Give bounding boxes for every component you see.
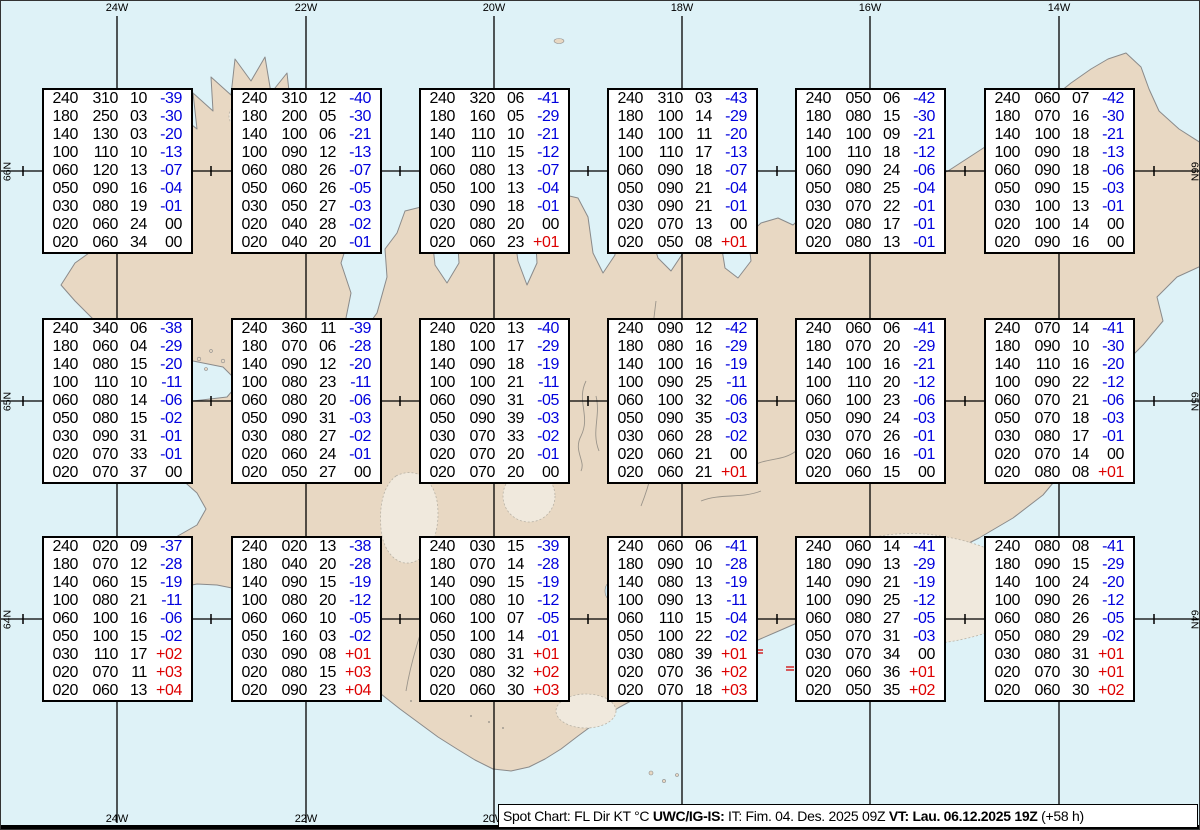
kt-value: 21 (1072, 392, 1089, 410)
spot-row: 10009018-13 (989, 144, 1129, 162)
temp-value: -01 (160, 198, 182, 216)
temp-value: -05 (913, 610, 935, 628)
dir-value: 060 (93, 574, 119, 592)
fl-value: 020 (618, 446, 644, 464)
kt-value: 22 (695, 628, 712, 646)
spot-row: 03008027-02 (236, 428, 376, 446)
fl-value: 180 (618, 108, 644, 126)
dir-value: 070 (658, 216, 684, 234)
dir-value: 020 (93, 538, 119, 556)
spot-row: 06009018-06 (989, 162, 1129, 180)
kt-value: 21 (883, 574, 900, 592)
spot-data-box-r1c5: 24007014-4118009010-3014011016-201000902… (984, 318, 1135, 484)
spot-data-box-r2c2: 24003015-3918007014-2814009015-191000801… (419, 536, 570, 702)
kt-value: 05 (507, 108, 524, 126)
kt-value: 14 (1072, 320, 1089, 338)
dir-value: 060 (470, 682, 496, 700)
spot-row: 10011010-13 (47, 144, 187, 162)
dir-value: 080 (470, 216, 496, 234)
kt-value: 32 (507, 664, 524, 682)
fl-value: 240 (995, 90, 1021, 108)
dir-value: 250 (93, 108, 119, 126)
dir-value: 060 (282, 180, 308, 198)
kt-value: 15 (883, 464, 900, 482)
dir-value: 020 (282, 538, 308, 556)
dir-value: 100 (658, 108, 684, 126)
temp-value: -21 (913, 126, 935, 144)
fl-value: 020 (618, 664, 644, 682)
dir-value: 090 (846, 574, 872, 592)
temp-value: -11 (161, 592, 182, 610)
dir-value: 090 (658, 198, 684, 216)
dir-value: 310 (658, 90, 684, 108)
kt-value: 21 (695, 446, 712, 464)
kt-value: 08 (319, 646, 336, 664)
temp-value: -01 (537, 628, 559, 646)
temp-value: -06 (349, 392, 371, 410)
fl-value: 180 (995, 338, 1021, 356)
dir-value: 100 (1035, 198, 1061, 216)
temp-value: -30 (160, 108, 182, 126)
dir-value: 080 (93, 392, 119, 410)
kt-value: 13 (319, 538, 336, 556)
dir-value: 060 (846, 320, 872, 338)
spot-chart-stage: 24031010-3918025003-3014013003-201001101… (0, 0, 1200, 830)
kt-value: 20 (507, 464, 524, 482)
fl-value: 060 (806, 392, 832, 410)
fl-value: 060 (430, 162, 456, 180)
fl-value: 100 (242, 592, 268, 610)
dir-value: 090 (658, 162, 684, 180)
kt-value: 15 (130, 574, 147, 592)
dir-value: 060 (93, 682, 119, 700)
kt-value: 23 (319, 374, 336, 392)
spot-row: 10011015-12 (424, 144, 564, 162)
temp-value: -02 (349, 628, 371, 646)
temp-value: +01 (533, 646, 559, 664)
spot-row: 18006004-29 (47, 338, 187, 356)
spot-row: 06010016-06 (47, 610, 187, 628)
spot-row: 02008017-01 (800, 216, 940, 234)
kt-value: 17 (507, 338, 524, 356)
temp-value: 00 (1107, 234, 1124, 252)
spot-row: 02006030+02 (989, 682, 1129, 700)
fl-value: 140 (618, 126, 644, 144)
spot-row: 24005006-42 (800, 90, 940, 108)
spot-row: 24006006-41 (800, 320, 940, 338)
dir-value: 100 (1035, 574, 1061, 592)
fl-value: 050 (995, 180, 1021, 198)
temp-value: 00 (354, 464, 371, 482)
fl-value: 030 (53, 198, 79, 216)
kt-value: 18 (1072, 144, 1089, 162)
spot-data-box-r0c3: 24031003-4318010014-2914010011-201001101… (607, 88, 758, 254)
dir-value: 080 (470, 162, 496, 180)
spot-row: 0200701400 (989, 446, 1129, 464)
spot-row: 0200702000 (424, 464, 564, 482)
fl-value: 030 (242, 646, 268, 664)
fl-value: 100 (806, 592, 832, 610)
temp-value: -30 (913, 108, 935, 126)
fl-value: 100 (430, 374, 456, 392)
spot-row: 02008008+01 (989, 464, 1129, 482)
temp-value: -04 (160, 180, 182, 198)
fl-value: 100 (430, 592, 456, 610)
spot-row: 24006014-41 (800, 538, 940, 556)
spot-row: 10009025-11 (612, 374, 752, 392)
kt-value: 10 (130, 374, 147, 392)
kt-value: 24 (1072, 574, 1089, 592)
dir-value: 110 (471, 126, 495, 144)
fl-value: 140 (242, 126, 268, 144)
dir-value: 100 (1035, 126, 1061, 144)
fl-value: 060 (242, 392, 268, 410)
kt-value: 17 (1072, 428, 1089, 446)
temp-value: -12 (1102, 592, 1124, 610)
spot-row: 0200602100 (612, 446, 752, 464)
dir-value: 090 (658, 320, 684, 338)
dir-value: 100 (658, 126, 684, 144)
temp-value: -42 (725, 320, 747, 338)
dir-value: 080 (1035, 628, 1061, 646)
kt-value: 18 (1072, 126, 1089, 144)
dir-value: 080 (282, 592, 308, 610)
kt-value: 13 (695, 216, 712, 234)
kt-value: 14 (883, 538, 900, 556)
dir-value: 090 (846, 410, 872, 428)
legend-columns-text: Spot Chart: FL Dir KT °C (503, 808, 653, 824)
dir-value: 060 (658, 538, 684, 556)
fl-value: 030 (430, 646, 456, 664)
spot-row: 03010013-01 (989, 198, 1129, 216)
fl-value: 050 (618, 628, 644, 646)
spot-row: 14010009-21 (800, 126, 940, 144)
spot-row: 0200603400 (47, 234, 187, 252)
fl-value: 050 (995, 628, 1021, 646)
temp-value: 00 (542, 216, 559, 234)
dir-value: 100 (93, 628, 119, 646)
dir-value: 070 (470, 464, 496, 482)
temp-value: 00 (165, 216, 182, 234)
temp-value: -28 (349, 556, 371, 574)
kt-value: 21 (130, 592, 147, 610)
fl-value: 180 (995, 556, 1021, 574)
temp-value: -01 (913, 216, 935, 234)
temp-value: -01 (725, 198, 747, 216)
temp-value: -03 (349, 198, 371, 216)
temp-value: -02 (349, 428, 371, 446)
temp-value: -11 (726, 592, 747, 610)
dir-value: 080 (658, 574, 684, 592)
kt-value: 12 (695, 320, 712, 338)
spot-row: 18025003-30 (47, 108, 187, 126)
kt-value: 10 (507, 592, 524, 610)
fl-value: 020 (53, 446, 79, 464)
spot-row: 03006028-02 (612, 428, 752, 446)
spot-row: 0300703400 (800, 646, 940, 664)
dir-value: 060 (846, 464, 872, 482)
temp-value: -28 (537, 556, 559, 574)
kt-value: 27 (319, 198, 336, 216)
fl-value: 050 (618, 410, 644, 428)
dir-value: 080 (1035, 610, 1061, 628)
spot-row: 10011018-12 (800, 144, 940, 162)
fl-value: 060 (53, 162, 79, 180)
fl-value: 050 (806, 180, 832, 198)
kt-value: 23 (883, 392, 900, 410)
temp-value: +01 (721, 234, 747, 252)
temp-value: -21 (1102, 126, 1124, 144)
temp-value: 00 (918, 646, 935, 664)
dir-value: 160 (470, 108, 496, 126)
temp-value: +03 (533, 682, 559, 700)
spot-row: 24002013-38 (236, 538, 376, 556)
temp-value: -01 (913, 234, 935, 252)
spot-row: 02007033-01 (47, 446, 187, 464)
spot-row: 10011010-11 (47, 374, 187, 392)
spot-row: 03007022-01 (800, 198, 940, 216)
temp-value: -01 (537, 198, 559, 216)
dir-value: 090 (846, 556, 872, 574)
kt-value: 18 (695, 682, 712, 700)
fl-value: 020 (430, 682, 456, 700)
temp-value: -01 (537, 446, 559, 464)
dir-value: 110 (1036, 356, 1060, 374)
spot-row: 06008026-05 (989, 610, 1129, 628)
fl-value: 050 (242, 180, 268, 198)
dir-value: 100 (1035, 216, 1061, 234)
temp-value: -13 (1102, 144, 1124, 162)
kt-value: 15 (1072, 180, 1089, 198)
dir-value: 080 (846, 234, 872, 252)
fl-value: 020 (53, 664, 79, 682)
temp-value: 00 (918, 464, 935, 482)
dir-value: 080 (658, 338, 684, 356)
temp-value: -06 (1102, 162, 1124, 180)
kt-value: 18 (1072, 410, 1089, 428)
spot-row: 24032006-41 (424, 90, 564, 108)
kt-value: 10 (507, 126, 524, 144)
spot-row: 02007036+02 (612, 664, 752, 682)
kt-value: 13 (695, 574, 712, 592)
spot-row: 06008026-07 (236, 162, 376, 180)
temp-value: -12 (913, 144, 935, 162)
spot-row: 10011020-12 (800, 374, 940, 392)
kt-value: 20 (319, 556, 336, 574)
temp-value: -21 (913, 356, 935, 374)
kt-value: 25 (883, 180, 900, 198)
dir-value: 060 (282, 610, 308, 628)
spot-row: 05009035-03 (612, 410, 752, 428)
dir-value: 060 (658, 446, 684, 464)
dir-value: 090 (1035, 592, 1061, 610)
spot-row: 24031010-39 (47, 90, 187, 108)
dir-value: 090 (93, 428, 119, 446)
spot-row: 06010032-06 (612, 392, 752, 410)
dir-value: 090 (1035, 374, 1061, 392)
fl-value: 020 (430, 216, 456, 234)
legend-issue-time: IT: Fim. 04. Des. 2025 09Z (724, 808, 888, 824)
chart-legend-bar: Spot Chart: FL Dir KT °C UWC/IG-IS: IT: … (498, 804, 1198, 828)
fl-value: 020 (618, 234, 644, 252)
kt-value: 31 (507, 392, 524, 410)
temp-value: -41 (537, 90, 559, 108)
dir-value: 100 (282, 126, 308, 144)
dir-value: 090 (470, 392, 496, 410)
temp-value: -12 (537, 592, 559, 610)
dir-value: 100 (470, 180, 496, 198)
dir-value: 090 (846, 592, 872, 610)
spot-row: 14008015-20 (47, 356, 187, 374)
kt-value: 16 (1072, 356, 1089, 374)
kt-value: 18 (695, 162, 712, 180)
dir-value: 340 (93, 320, 119, 338)
kt-value: 27 (319, 428, 336, 446)
dir-value: 110 (94, 646, 118, 664)
spot-row: 14008013-19 (612, 574, 752, 592)
spot-data-box-r0c0: 24031010-3918025003-3014013003-201001101… (42, 88, 193, 254)
temp-value: +01 (1098, 646, 1124, 664)
temp-value: -02 (725, 428, 747, 446)
fl-value: 240 (618, 320, 644, 338)
kt-value: 15 (130, 356, 147, 374)
temp-value: -01 (1102, 428, 1124, 446)
spot-row: 0200703700 (47, 464, 187, 482)
fl-value: 240 (430, 538, 456, 556)
kt-value: 13 (130, 162, 147, 180)
dir-value: 090 (470, 574, 496, 592)
dir-value: 360 (282, 320, 308, 338)
fl-value: 050 (995, 410, 1021, 428)
dir-value: 070 (93, 446, 119, 464)
fl-value: 060 (242, 610, 268, 628)
spot-row: 03008031+01 (989, 646, 1129, 664)
spot-row: 06009031-05 (424, 392, 564, 410)
kt-value: 25 (883, 592, 900, 610)
dir-value: 070 (282, 338, 308, 356)
fl-value: 020 (430, 464, 456, 482)
fl-value: 140 (995, 126, 1021, 144)
kt-value: 19 (130, 198, 147, 216)
temp-value: -13 (160, 144, 182, 162)
spot-row: 06008013-07 (424, 162, 564, 180)
fl-value: 100 (242, 144, 268, 162)
dir-value: 090 (282, 646, 308, 664)
temp-value: +02 (533, 664, 559, 682)
kt-value: 03 (130, 108, 147, 126)
spot-row: 03011017+02 (47, 646, 187, 664)
kt-value: 14 (1072, 216, 1089, 234)
fl-value: 020 (995, 216, 1021, 234)
temp-value: +02 (156, 646, 182, 664)
spot-data-box-r1c2: 24002013-4018010017-2914009018-191001002… (419, 318, 570, 484)
fl-value: 140 (430, 356, 456, 374)
dir-value: 070 (470, 446, 496, 464)
temp-value: -06 (160, 392, 182, 410)
kt-value: 20 (319, 234, 336, 252)
fl-value: 030 (430, 428, 456, 446)
temp-value: -41 (725, 538, 747, 556)
spot-row: 05010022-02 (612, 628, 752, 646)
fl-value: 020 (242, 464, 268, 482)
temp-value: -12 (537, 144, 559, 162)
temp-value: -11 (538, 374, 559, 392)
kt-value: 15 (130, 628, 147, 646)
dir-value: 080 (282, 374, 308, 392)
spot-row: 24002009-37 (47, 538, 187, 556)
spot-row: 02006036+01 (800, 664, 940, 682)
kt-value: 24 (319, 446, 336, 464)
temp-value: -03 (913, 410, 935, 428)
spot-row: 03009031-01 (47, 428, 187, 446)
spot-row: 18008016-29 (612, 338, 752, 356)
fl-value: 050 (618, 180, 644, 198)
dir-value: 090 (470, 410, 496, 428)
kt-value: 20 (507, 446, 524, 464)
dir-value: 090 (1035, 556, 1061, 574)
spot-data-box-r2c4: 24006014-4118009013-2914009021-191000902… (795, 536, 946, 702)
dir-value: 080 (846, 108, 872, 126)
dir-value: 100 (93, 610, 119, 628)
kt-value: 26 (319, 162, 336, 180)
dir-value: 080 (1035, 538, 1061, 556)
fl-value: 060 (53, 610, 79, 628)
dir-value: 090 (658, 180, 684, 198)
fl-value: 140 (430, 574, 456, 592)
spot-row: 02006023+01 (424, 234, 564, 252)
spot-row: 0200701300 (612, 216, 752, 234)
fl-value: 030 (430, 198, 456, 216)
kt-value: 12 (130, 556, 147, 574)
spot-row: 02008032+02 (424, 664, 564, 682)
kt-value: 08 (695, 234, 712, 252)
dir-value: 060 (282, 446, 308, 464)
temp-value: -05 (537, 610, 559, 628)
fl-value: 140 (806, 574, 832, 592)
kt-value: 16 (1072, 234, 1089, 252)
fl-value: 100 (53, 144, 79, 162)
fl-value: 030 (806, 198, 832, 216)
dir-value: 090 (1035, 144, 1061, 162)
dir-value: 050 (846, 682, 872, 700)
temp-value: -39 (349, 320, 371, 338)
temp-value: -03 (725, 410, 747, 428)
temp-value: -11 (726, 374, 747, 392)
temp-value: -28 (349, 338, 371, 356)
fl-value: 140 (995, 574, 1021, 592)
temp-value: -05 (349, 610, 371, 628)
fl-value: 020 (53, 234, 79, 252)
spot-data-box-r1c3: 24009012-4218008016-2914010016-191000902… (607, 318, 758, 484)
kt-value: 15 (130, 410, 147, 428)
spot-row: 14009018-19 (424, 356, 564, 374)
fl-value: 140 (806, 126, 832, 144)
spot-row: 14010024-20 (989, 574, 1129, 592)
temp-value: +01 (721, 646, 747, 664)
dir-value: 070 (846, 628, 872, 646)
fl-value: 020 (242, 682, 268, 700)
fl-value: 180 (430, 338, 456, 356)
spot-row: 0200502700 (236, 464, 376, 482)
temp-value: -04 (725, 610, 747, 628)
kt-value: 20 (319, 592, 336, 610)
dir-value: 060 (93, 234, 119, 252)
spot-row: 0200601500 (800, 464, 940, 482)
spot-row: 18007020-29 (800, 338, 940, 356)
dir-value: 200 (282, 108, 308, 126)
spot-row: 0200802000 (424, 216, 564, 234)
spot-row: 05008015-02 (47, 410, 187, 428)
